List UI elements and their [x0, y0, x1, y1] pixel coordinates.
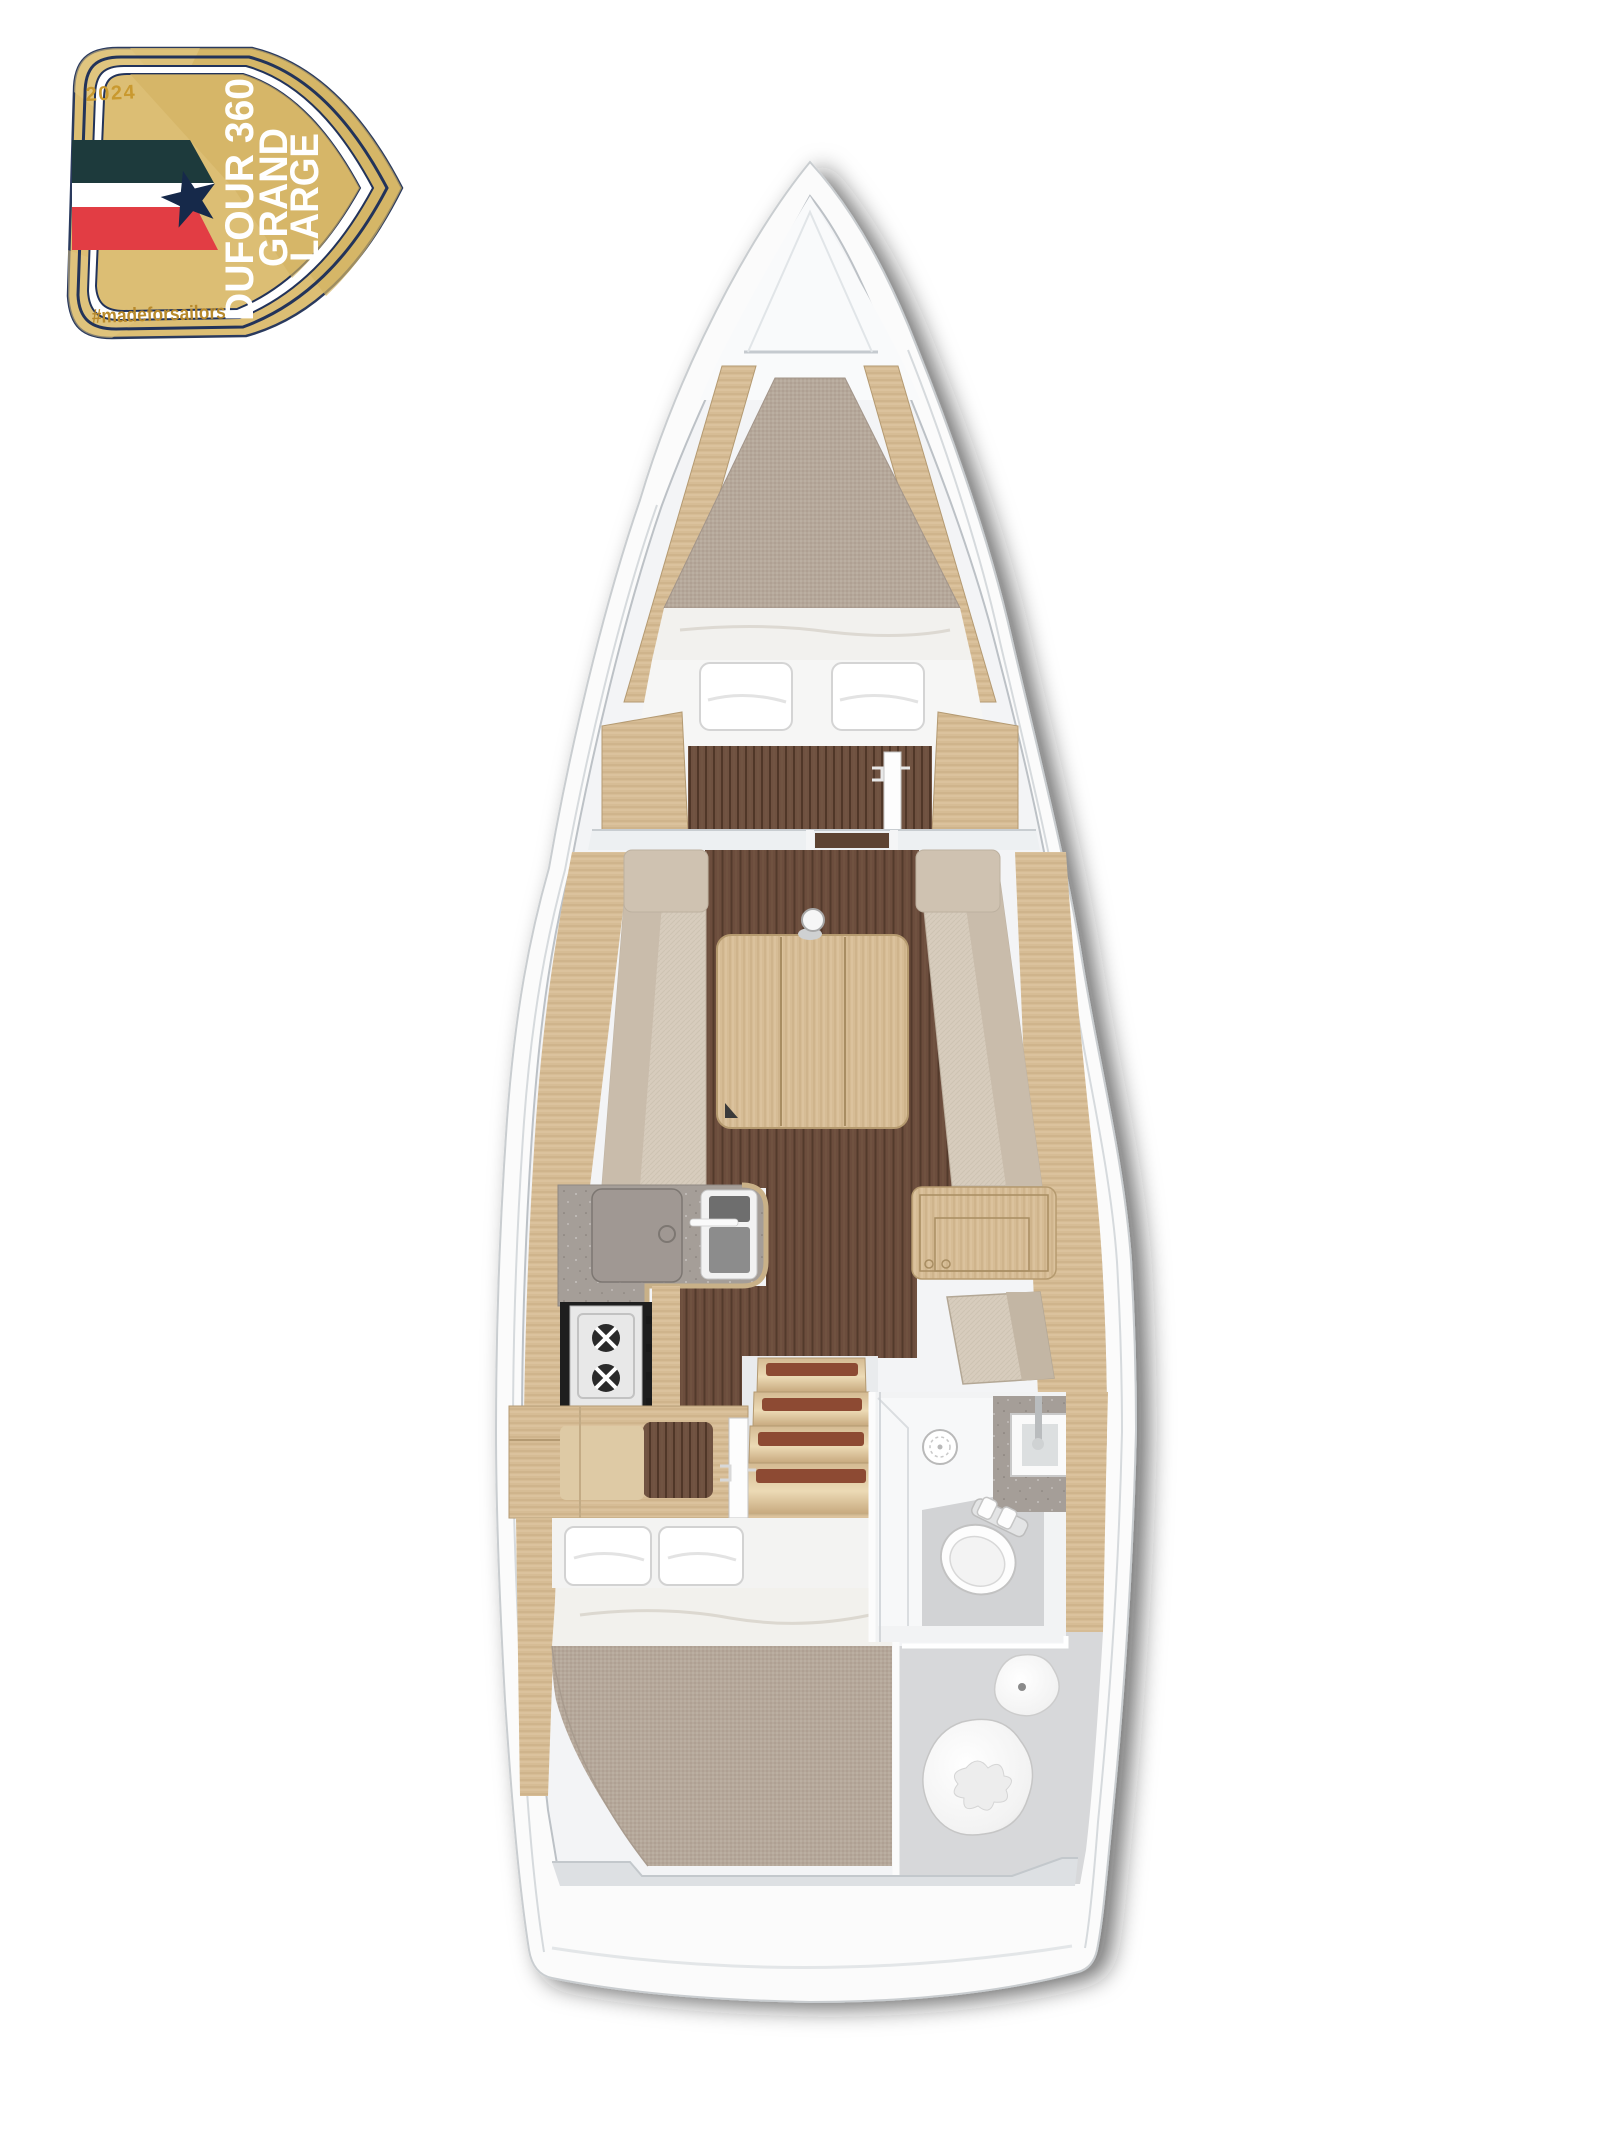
- svg-text:LARGE: LARGE: [283, 133, 327, 262]
- svg-text:2024: 2024: [85, 81, 137, 106]
- svg-text:#madeforsailors: #madeforsailors: [91, 301, 226, 328]
